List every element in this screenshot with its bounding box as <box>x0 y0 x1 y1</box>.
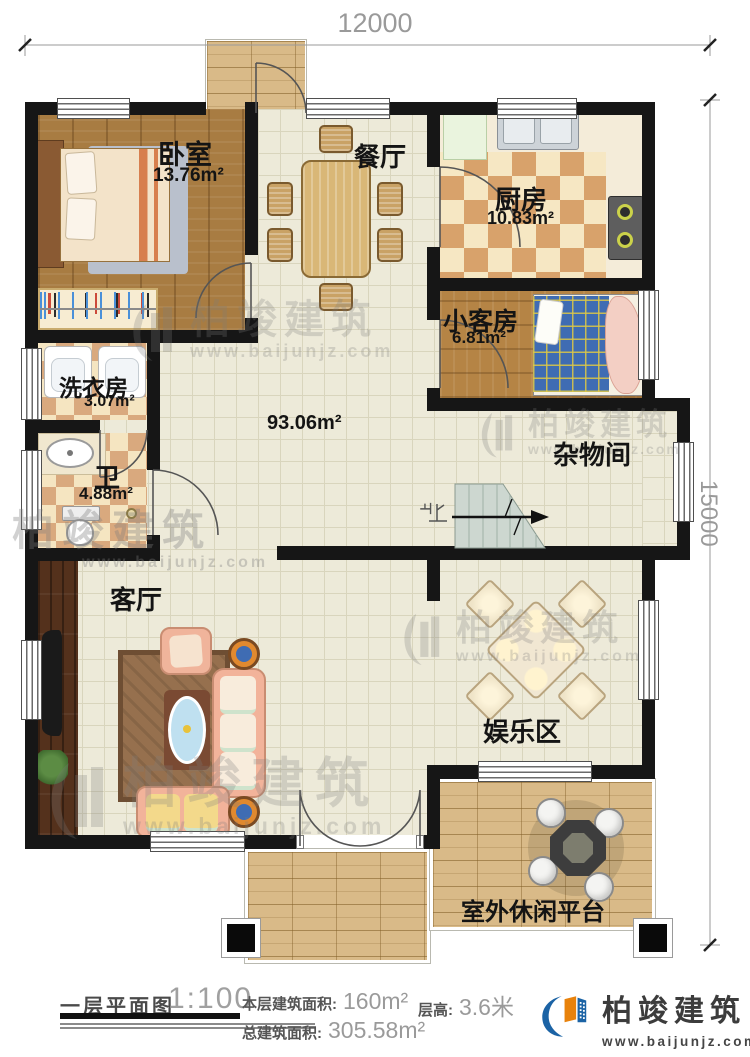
window <box>21 640 42 720</box>
wall-segment <box>245 102 258 255</box>
dining-chair <box>267 228 293 262</box>
patio-chair <box>536 798 566 828</box>
watermark: 柏竣建筑 www.baijunjz.com <box>45 755 386 843</box>
sink-basin <box>503 115 535 144</box>
total-area-label: 总建筑面积: <box>242 1022 322 1043</box>
stove-burner <box>617 232 633 248</box>
dimension-top: 12000 <box>320 8 430 39</box>
window <box>638 290 659 380</box>
wall-segment <box>427 102 440 167</box>
floor-area-row: 本层建筑面积: 160m² <box>242 988 408 1015</box>
dining-chair <box>267 182 293 216</box>
wall-segment <box>147 433 160 470</box>
window <box>497 98 577 119</box>
room-area-kitchen: 10.83m² <box>487 208 554 229</box>
wall-segment <box>427 765 440 849</box>
floor-height-value: 3.6米 <box>459 988 514 1022</box>
total-area-row: 总建筑面积: 305.58m² <box>242 1017 425 1044</box>
dining-chair <box>377 228 403 262</box>
wall-segment <box>427 388 440 411</box>
floor-area-value: 160m² <box>343 988 408 1015</box>
wall-segment <box>25 720 38 849</box>
brand-name: 柏竣建筑 <box>602 986 750 1030</box>
brand-logo: 柏竣建筑 www.baijunjz.com <box>540 986 750 1049</box>
wall-segment <box>277 546 690 560</box>
watermark-name: 柏竣建筑 <box>123 755 386 814</box>
room-label-living: 客厅 <box>110 580 162 617</box>
title-underline-bar <box>60 1013 240 1019</box>
window <box>21 348 42 420</box>
watermark-site: www.baijunjz.com <box>123 814 386 839</box>
brand-logo-icon <box>540 986 592 1044</box>
floor-height-row: 层高: 3.6米 <box>418 988 514 1022</box>
window <box>306 98 390 119</box>
tv-screen <box>42 630 62 736</box>
watermark-name: 柏竣建筑 <box>456 608 642 648</box>
wall-segment <box>25 420 100 433</box>
wall-segment <box>390 102 497 115</box>
plan-scale: 1:100 <box>168 982 253 1016</box>
wall-segment <box>427 546 440 601</box>
watermark-logo-icon <box>128 298 180 364</box>
room-area-bedroom: 13.76m² <box>153 165 224 187</box>
watermark: 柏竣建筑 www.baijunjz.com <box>400 608 642 668</box>
hall-area-label: 93.06m² <box>267 412 342 435</box>
sink-drain <box>67 450 73 456</box>
column <box>222 919 260 957</box>
dining-chair <box>377 182 403 216</box>
bed-pillow <box>65 151 98 195</box>
wall-segment <box>427 247 440 320</box>
table-decor <box>183 725 191 733</box>
watermark: 柏竣建筑 www.baijunjz.com <box>128 298 393 364</box>
room-label-entertainment: 娱乐区 <box>483 712 561 749</box>
dining-table <box>301 160 371 278</box>
room-label-storage: 杂物间 <box>553 435 631 472</box>
room-label-platform: 室外休闲平台 <box>461 892 605 927</box>
watermark-logo-icon <box>400 608 446 668</box>
sink-basin <box>540 115 572 144</box>
wall-segment <box>25 102 38 348</box>
platform-floor-left <box>245 849 430 963</box>
floor-area-label: 本层建筑面积: <box>242 993 337 1014</box>
stove-burner <box>617 204 633 220</box>
watermark-site: www.baijunjz.com <box>456 648 642 666</box>
fridge <box>443 112 487 160</box>
dimension-right: 15000 <box>694 480 722 547</box>
wall-segment <box>642 380 655 398</box>
floor-plan-canvas: 上 柏竣建筑 www.baijunjz.com 柏竣建筑 www.baijunj… <box>0 0 750 1057</box>
watermark-name: 柏竣建筑 <box>190 298 393 342</box>
window <box>478 761 592 782</box>
wall-segment <box>130 102 206 115</box>
watermark-logo-icon <box>45 755 113 843</box>
sofa-cushion <box>220 714 256 752</box>
column <box>634 919 672 957</box>
dining-chair <box>319 125 353 153</box>
window <box>57 98 130 119</box>
side-table-inner <box>236 646 252 662</box>
room-label-dining: 餐厅 <box>354 137 406 174</box>
wall-segment <box>642 560 655 600</box>
room-area-guest: 6.81m² <box>452 328 506 348</box>
door-jamb <box>416 835 424 849</box>
room-area-bath: 4.88m² <box>79 484 133 504</box>
total-area-value: 305.58m² <box>328 1017 425 1044</box>
wall-segment <box>592 765 655 779</box>
watermark-logo-icon <box>478 408 518 460</box>
wall-segment <box>427 278 655 291</box>
watermark: 柏竣建筑 www.baijunjz.com <box>12 508 268 572</box>
patio-table-center <box>563 833 593 863</box>
armchair-cushion <box>169 634 203 668</box>
watermark-name: 柏竣建筑 <box>12 508 268 554</box>
sofa-cushion <box>220 676 256 714</box>
watermark-site: www.baijunjz.com <box>12 554 268 572</box>
stairs-up-label: 上 <box>418 502 435 514</box>
watermark-site: www.baijunjz.com <box>190 342 393 362</box>
room-area-laundry: 3.07m² <box>84 393 135 411</box>
wall-segment <box>642 102 655 290</box>
brand-site: www.baijunjz.com <box>602 1034 750 1049</box>
bed-pillow <box>65 197 97 241</box>
